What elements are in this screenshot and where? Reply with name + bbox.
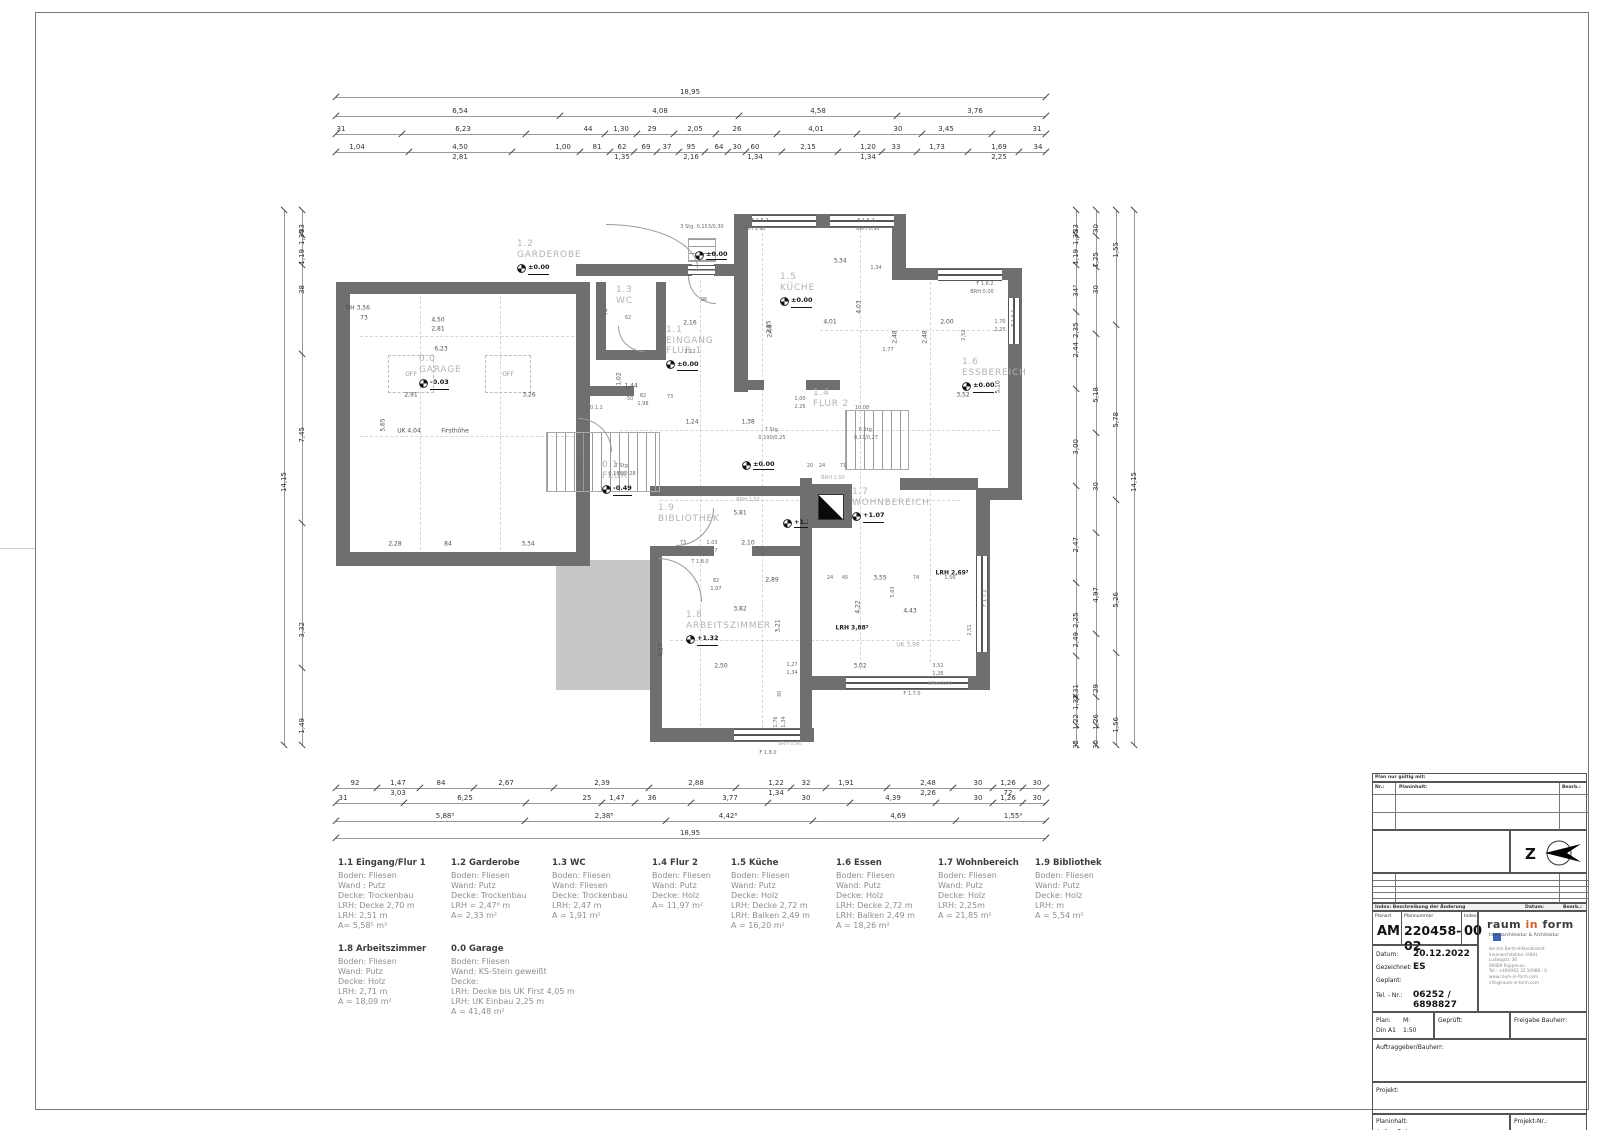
revision-box: [1372, 830, 1510, 873]
legend-room-line: A= 5,58⁵ m²: [338, 921, 443, 931]
auftraggeber-box: Auftraggeber/Bauherr:: [1372, 1039, 1587, 1082]
legend-room-line: Wand: Putz: [451, 881, 556, 891]
legend-room-line: Boden: Fliesen: [338, 957, 443, 967]
legend-entry: 1.3 WCBoden: FliesenWand: FliesenDecke: …: [552, 858, 657, 921]
legend-room-line: A= 2,33 m²: [451, 911, 556, 921]
legend-room-line: A = 18,09 m²: [338, 997, 443, 1007]
legend-room-line: LRH: Balken 2,49 m: [731, 911, 836, 921]
legend-room-line: LRH: 2,25m: [938, 901, 1043, 911]
legend-entry: 1.6 EssenBoden: FliesenWand: PutzDecke: …: [836, 858, 941, 931]
planinhalt-label: Planinhalt:: [1376, 1118, 1408, 1125]
legend-room-title: 1.1 Eingang/Flur 1: [338, 858, 443, 868]
legend-room-line: LRH = 2,47⁶ m: [451, 901, 556, 911]
legend-room-line: Decke: Holz: [338, 977, 443, 987]
validity-title: Plan nur gültig mit:: [1375, 775, 1426, 780]
legend-room-line: A = 1,91 m²: [552, 911, 657, 921]
plan-label: Plan:: [1376, 1017, 1391, 1024]
legend-room-line: Wand: Putz: [938, 881, 1043, 891]
legend-room-line: Decke: Trockenbau: [338, 891, 443, 901]
index-label: Index: [1464, 914, 1477, 919]
change-header-row: Index: Beschreibung der Änderung Datum: …: [1372, 903, 1587, 911]
legend-room-line: Decke: Trockenbau: [552, 891, 657, 901]
plan-number-group: Planart AM Plannummer 220458-02 Index 00: [1372, 911, 1478, 945]
company-address: Kerstin Bertz-HildenbrandtInnenarchitekt…: [1489, 946, 1547, 985]
legend-room-line: Wand: Putz: [836, 881, 941, 891]
plan-format: Din A1: [1376, 1027, 1396, 1034]
address-line: info@raum-in-form.com: [1489, 980, 1547, 986]
validity-col-nr: Nr.:: [1375, 785, 1384, 790]
planart-label: Planart: [1375, 914, 1391, 919]
legend-room-line: A = 18,26 m²: [836, 921, 941, 931]
legend-room-line: Boden: Fliesen: [552, 871, 657, 881]
legend-room-title: 1.2 Garderobe: [451, 858, 556, 868]
legend-entry: 0.0 GarageBoden: FliesenWand: KS-Stein g…: [451, 944, 556, 1017]
logo-subtitle: Innenarchitektur & Architektur: [1489, 933, 1559, 938]
legend-room-line: Wand: Putz: [338, 967, 443, 977]
legend-room-line: Decke: Trockenbau: [451, 891, 556, 901]
legend-entry: 1.1 Eingang/Flur 1Boden: FliesenWand : P…: [338, 858, 443, 931]
legend-entry: 1.9 BibliothekBoden: FliesenWand: PutzDe…: [1035, 858, 1140, 921]
geprueft-box: Geprüft:: [1434, 1012, 1510, 1039]
legend-room-line: Wand: Putz: [1035, 881, 1140, 891]
datum-label: Datum:: [1376, 951, 1398, 958]
validity-header: Plan nur gültig mit:: [1372, 773, 1587, 782]
north-arrow-box: Z: [1510, 830, 1587, 873]
legend-room-line: Wand: Putz: [731, 881, 836, 891]
meta-box: Datum: 20.12.2022 Gezeichnet: ES Geplant…: [1372, 945, 1478, 1012]
projekt-box: Projekt:: [1372, 1082, 1587, 1114]
geplant-label: Geplant:: [1376, 977, 1402, 984]
planinhalt-box: Planinhalt: Aufmaßplan Erdgeschoss: [1372, 1114, 1510, 1130]
address-line: Kerstin Bertz-Hildenbrandt: [1489, 946, 1547, 952]
change-header-bearb: Bearb.:: [1563, 905, 1582, 910]
validity-table: Nr.: Planinhalt: Bearb.:: [1372, 782, 1587, 830]
legend-room-line: Wand : Putz: [338, 881, 443, 891]
legend-room-line: Decke: Holz: [836, 891, 941, 901]
planart-value: AM: [1377, 924, 1400, 939]
legend-room-line: Boden: Fliesen: [938, 871, 1043, 881]
legend-room-line: Decke:: [451, 977, 556, 987]
legend-room-line: Wand: KS-Stein geweißt: [451, 967, 556, 977]
legend-room-line: LRH: UK Einbau 2,25 m: [451, 997, 556, 1007]
legend-room-line: LRH: Balken 2,49 m: [836, 911, 941, 921]
legend-room-title: 1.7 Wohnbereich: [938, 858, 1043, 868]
title-block: Plan nur gültig mit: Nr.: Planinhalt: Be…: [1372, 773, 1587, 1108]
index-table: [1372, 873, 1587, 903]
legend-room-line: LRH: Decke 2,72 m: [731, 901, 836, 911]
logo-box: raum in form Innenarchitektur & Architek…: [1478, 911, 1587, 1012]
gezeichnet-value: ES: [1413, 962, 1426, 972]
scale-box: Plan: M: Din A1 1:50: [1372, 1012, 1434, 1039]
legend-room-line: LRH: Decke 2,72 m: [836, 901, 941, 911]
legend-room-title: 1.8 Arbeitszimmer: [338, 944, 443, 954]
legend-room-line: LRH: Decke 2,70 m: [338, 901, 443, 911]
legend-room-line: Boden: Fliesen: [1035, 871, 1140, 881]
north-arrow-icon: Z: [1519, 839, 1583, 867]
legend-room-line: LRH: Decke bis UK First 4,05 m: [451, 987, 556, 997]
legend-room-line: Boden: Fliesen: [731, 871, 836, 881]
gezeichnet-label: Gezeichnet:: [1376, 964, 1412, 971]
projekt-nr-box: Projekt-Nr.: 220458: [1510, 1114, 1587, 1130]
legend-room-title: 1.6 Essen: [836, 858, 941, 868]
change-header-index: Index: Beschreibung der Änderung: [1375, 905, 1465, 910]
legend-room-line: Boden: Fliesen: [836, 871, 941, 881]
legend-entry: 1.2 GarderobeBoden: FliesenWand: PutzDec…: [451, 858, 556, 921]
freigabe-box: Freigabe Bauherr:: [1510, 1012, 1587, 1039]
legend-room-line: A = 5,54 m²: [1035, 911, 1140, 921]
legend-entry: 1.5 KücheBoden: FliesenWand: PutzDecke: …: [731, 858, 836, 931]
legend-room-line: A = 41,48 m²: [451, 1007, 556, 1017]
validity-col-bearb: Bearb.:: [1562, 785, 1581, 790]
tel-value: 06252 / 6898827: [1413, 990, 1477, 1010]
legend-room-line: Decke: Holz: [1035, 891, 1140, 901]
legend-room-line: LRH: 2,47 m: [552, 901, 657, 911]
geprueft-label: Geprüft:: [1438, 1017, 1463, 1024]
room-legend: 1.1 Eingang/Flur 1Boden: FliesenWand : P…: [0, 0, 1600, 1130]
legend-room-line: Boden: Fliesen: [451, 871, 556, 881]
fireplace-symbol: [818, 494, 844, 520]
legend-room-title: 1.3 WC: [552, 858, 657, 868]
legend-room-line: Decke: Holz: [938, 891, 1043, 901]
datum-value: 20.12.2022: [1413, 949, 1470, 959]
legend-room-line: Boden: Fliesen: [451, 957, 556, 967]
projekt-nr-label: Projekt-Nr.:: [1514, 1118, 1547, 1125]
legend-room-line: Decke: Holz: [731, 891, 836, 901]
north-arrow-letter: Z: [1525, 845, 1536, 863]
scale-m-label: M:: [1403, 1017, 1410, 1024]
legend-room-line: Wand: Fliesen: [552, 881, 657, 891]
legend-room-line: A = 21,85 m²: [938, 911, 1043, 921]
tel-label: Tel. - Nr.:: [1376, 992, 1402, 999]
change-header-datum: Datum:: [1525, 905, 1544, 910]
projekt-label: Projekt:: [1376, 1087, 1399, 1094]
legend-room-line: A = 16,20 m²: [731, 921, 836, 931]
legend-room-title: 1.9 Bibliothek: [1035, 858, 1140, 868]
auftraggeber-label: Auftraggeber/Bauherr:: [1376, 1044, 1444, 1051]
legend-room-title: 1.5 Küche: [731, 858, 836, 868]
logo-word-in: in: [1525, 918, 1538, 931]
plannummer-label: Plannummer: [1404, 914, 1433, 919]
legend-room-line: Boden: Fliesen: [338, 871, 443, 881]
drawing-sheet: 1.2GARDEROBE±0.001.3WC1.1EINGANGFLUR 1±0…: [0, 0, 1600, 1130]
legend-room-line: LRH: m: [1035, 901, 1140, 911]
legend-room-line: LRH: 2,71 m: [338, 987, 443, 997]
validity-col-planinhalt: Planinhalt:: [1399, 785, 1427, 790]
legend-room-title: 0.0 Garage: [451, 944, 556, 954]
legend-entry: 1.7 WohnbereichBoden: FliesenWand: PutzD…: [938, 858, 1043, 921]
company-logo: raum in form: [1487, 918, 1586, 944]
scale-value: 1:50: [1403, 1027, 1416, 1034]
legend-room-line: LRH: 2,51 m: [338, 911, 443, 921]
freigabe-label: Freigabe Bauherr:: [1514, 1017, 1567, 1024]
legend-entry: 1.8 ArbeitszimmerBoden: FliesenWand: Put…: [338, 944, 443, 1007]
